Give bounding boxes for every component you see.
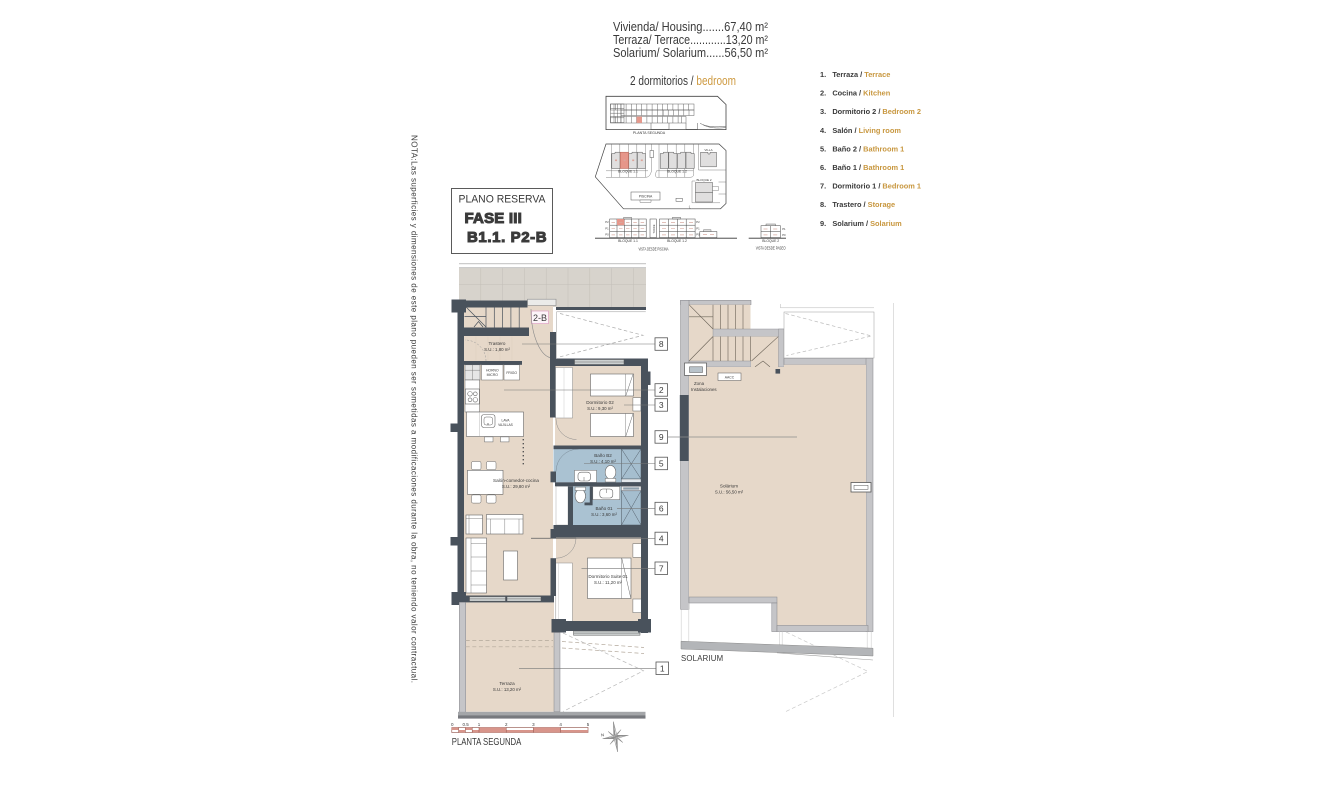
svg-text:FASE III: FASE III xyxy=(465,210,522,227)
svg-text:4: 4 xyxy=(659,534,664,544)
svg-text:2: 2 xyxy=(659,385,664,395)
svg-text:MICRO: MICRO xyxy=(487,373,499,377)
svg-text:VISTA DESDE PASEO: VISTA DESDE PASEO xyxy=(756,246,787,251)
svg-text:AACC: AACC xyxy=(725,375,735,379)
svg-text:P0: P0 xyxy=(605,233,609,237)
svg-text:9. Solarium / Solarium: 9. Solarium / Solarium xyxy=(820,219,902,228)
svg-text:Dormitorio Suite 01: Dormitorio Suite 01 xyxy=(588,574,628,579)
svg-text:3. Dormitorio 2 / Bedroom 2: 3. Dormitorio 2 / Bedroom 2 xyxy=(820,107,921,116)
svg-text:Trastero: Trastero xyxy=(489,341,506,346)
svg-text:9: 9 xyxy=(659,432,664,442)
svg-text:Vivienda/ Housing.......67,40: Vivienda/ Housing.......67,40 m² xyxy=(613,20,768,34)
svg-text:BLOQUE 2: BLOQUE 2 xyxy=(762,239,779,243)
svg-text:FRIGO: FRIGO xyxy=(506,371,517,375)
svg-text:Terraza/ Terrace............13: Terraza/ Terrace............13,20 m² xyxy=(613,33,768,47)
svg-text:1. Terraza / Terrace: 1. Terraza / Terrace xyxy=(820,70,890,79)
svg-text:Dormitorio 02: Dormitorio 02 xyxy=(586,400,614,405)
svg-text:S.U.: 9,30 m²: S.U.: 9,30 m² xyxy=(587,406,613,411)
svg-text:8: 8 xyxy=(659,339,664,349)
svg-text:0: 0 xyxy=(451,722,454,727)
svg-text:4: 4 xyxy=(559,722,562,727)
svg-text:5: 5 xyxy=(659,459,664,469)
svg-text:6. Baño 1 / Bathroom 1: 6. Baño 1 / Bathroom 1 xyxy=(820,163,904,172)
svg-text:VISTA DESDE PISCINA: VISTA DESDE PISCINA xyxy=(639,247,669,252)
svg-text:B1.1. P2-B: B1.1. P2-B xyxy=(467,229,547,246)
svg-text:BLOQUE 1.2: BLOQUE 1.2 xyxy=(667,170,687,174)
svg-text:BLOQUE 1.1: BLOQUE 1.1 xyxy=(618,170,638,174)
svg-text:1: 1 xyxy=(660,663,665,673)
svg-text:HORNO: HORNO xyxy=(486,369,499,373)
svg-text:7: 7 xyxy=(659,563,664,573)
svg-text:Baño 01: Baño 01 xyxy=(595,506,613,511)
svg-text:N: N xyxy=(601,732,605,737)
svg-text:Solarium/ Solarium......56,50: Solarium/ Solarium......56,50 m² xyxy=(613,46,768,60)
svg-text:SOLARIUM: SOLARIUM xyxy=(681,654,723,663)
svg-text:P1: P1 xyxy=(782,227,786,231)
svg-text:PLANTA SEGUNDA: PLANTA SEGUNDA xyxy=(452,737,522,748)
svg-text:NOTA:Las superficies y dimensi: NOTA:Las superficies y dimensiones de es… xyxy=(410,135,419,683)
svg-text:PISCINA: PISCINA xyxy=(639,194,653,198)
svg-text:TORRE: TORRE xyxy=(652,224,656,233)
svg-text:BLOQUE 1.1: BLOQUE 1.1 xyxy=(618,239,638,243)
svg-text:2. Cocina / Kitchen: 2. Cocina / Kitchen xyxy=(820,89,891,98)
svg-text:S.U.: 3,60 m²: S.U.: 3,60 m² xyxy=(591,512,617,517)
svg-text:2 dormitorios / bedroom: 2 dormitorios / bedroom xyxy=(630,74,736,88)
svg-text:BLOQUE 1.2: BLOQUE 1.2 xyxy=(667,239,687,243)
svg-text:PLANTA SEGUNDA: PLANTA SEGUNDA xyxy=(633,131,666,135)
svg-text:Baño B2: Baño B2 xyxy=(594,453,612,458)
svg-text:P2: P2 xyxy=(696,220,700,224)
svg-text:5. Baño 2 / Bathroom 1: 5. Baño 2 / Bathroom 1 xyxy=(820,144,904,153)
svg-text:S.U.: 29,80 m²: S.U.: 29,80 m² xyxy=(502,484,531,489)
svg-text:BLOQUE 2: BLOQUE 2 xyxy=(696,178,711,182)
svg-text:3: 3 xyxy=(532,722,535,727)
svg-text:2: 2 xyxy=(505,722,508,727)
svg-text:S.U.: 56,50 m²: S.U.: 56,50 m² xyxy=(715,490,744,495)
svg-text:P1: P1 xyxy=(696,226,700,230)
svg-text:2-B: 2-B xyxy=(533,313,547,323)
svg-text:3: 3 xyxy=(659,400,664,410)
svg-text:P1: P1 xyxy=(605,226,609,230)
svg-text:8. Trastero / Storage: 8. Trastero / Storage xyxy=(820,200,895,209)
svg-text:6: 6 xyxy=(659,504,664,514)
svg-text:S.U.: 1,80 m²: S.U.: 1,80 m² xyxy=(484,347,510,352)
svg-text:0.5: 0.5 xyxy=(462,722,469,727)
svg-text:4. Salón / Living room: 4. Salón / Living room xyxy=(820,126,901,135)
svg-text:Instalaciones: Instalaciones xyxy=(691,387,717,392)
svg-text:Zona: Zona xyxy=(694,381,705,386)
svg-text:1: 1 xyxy=(478,722,481,727)
svg-text:P2: P2 xyxy=(605,220,609,224)
svg-text:5: 5 xyxy=(587,722,590,727)
svg-text:VILLA: VILLA xyxy=(704,148,712,152)
svg-text:Solárium: Solárium xyxy=(720,484,738,489)
svg-text:7. Dormitorio 1 / Bedroom 1: 7. Dormitorio 1 / Bedroom 1 xyxy=(820,182,921,191)
svg-text:VAJILLAS: VAJILLAS xyxy=(498,423,514,427)
svg-text:Terraza: Terraza xyxy=(499,681,515,686)
svg-text:P0: P0 xyxy=(782,233,786,237)
svg-text:PLANO RESERVA: PLANO RESERVA xyxy=(459,194,547,206)
svg-text:LAVA: LAVA xyxy=(502,419,511,423)
svg-text:S.U.: 13,20 m²: S.U.: 13,20 m² xyxy=(493,687,522,692)
svg-text:S.U.: 11,20 m²: S.U.: 11,20 m² xyxy=(594,580,623,585)
svg-text:Salón-comedor-cocina: Salón-comedor-cocina xyxy=(493,478,539,483)
